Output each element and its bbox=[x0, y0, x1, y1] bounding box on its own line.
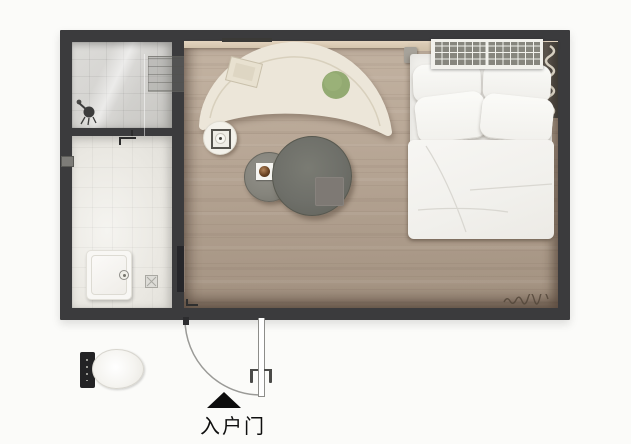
washbasin bbox=[86, 250, 132, 300]
bathroom-pocket-door bbox=[177, 246, 184, 292]
ac-center-divider bbox=[486, 42, 489, 66]
round-side-table bbox=[203, 121, 237, 155]
toilet-room-floor bbox=[72, 136, 172, 308]
entrance-arrow-icon bbox=[207, 392, 241, 408]
coffee-cup-icon bbox=[259, 166, 270, 177]
bath-door-handle-lower bbox=[119, 137, 136, 145]
shower-mixer-icon bbox=[74, 96, 102, 128]
wall-niche bbox=[61, 156, 74, 167]
door-handle-right-top bbox=[264, 369, 272, 371]
floor-plan-canvas: 入户门 bbox=[0, 0, 631, 444]
bed-duvet bbox=[408, 140, 554, 239]
door-handle-left bbox=[250, 369, 253, 383]
side-table-dot bbox=[219, 137, 222, 140]
large-coffee-table bbox=[272, 136, 352, 216]
pillow bbox=[479, 92, 555, 144]
shower-shelf bbox=[148, 56, 186, 92]
entrance-label: 入户门 bbox=[188, 410, 278, 439]
ac-radiator-unit bbox=[431, 39, 543, 69]
apartment-walls bbox=[60, 30, 570, 320]
glass-partition bbox=[144, 54, 145, 140]
pillow bbox=[413, 90, 488, 145]
door-handle-right bbox=[269, 369, 272, 383]
green-cushion-highlight bbox=[324, 73, 342, 91]
cistern-buttons bbox=[86, 359, 88, 381]
coaster bbox=[256, 163, 273, 180]
floor-drain-icon bbox=[145, 275, 158, 288]
door-handle-left-top bbox=[250, 369, 258, 371]
toilet-bowl bbox=[92, 349, 144, 389]
faucet-dot bbox=[123, 274, 126, 277]
pocket-door-handle bbox=[186, 299, 198, 306]
shower-room-floor bbox=[72, 42, 172, 128]
floor-scribble-decor bbox=[502, 294, 550, 306]
serving-tray bbox=[315, 177, 344, 206]
duvet-folds bbox=[408, 140, 554, 239]
entry-door-leaf bbox=[258, 318, 265, 397]
door-jamb bbox=[183, 317, 189, 325]
